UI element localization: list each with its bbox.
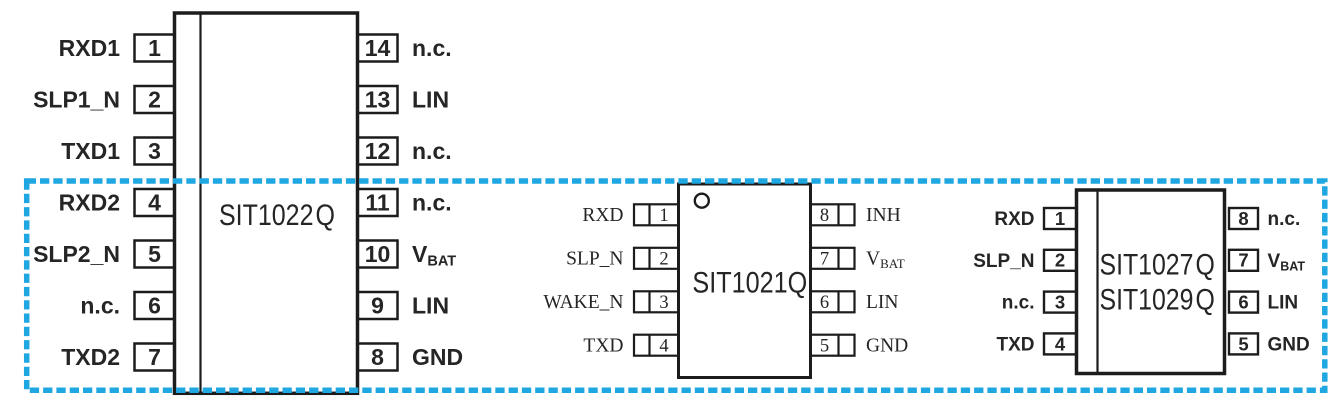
svg-text:4: 4	[659, 336, 668, 356]
svg-text:SLP2_N: SLP2_N	[33, 241, 120, 267]
svg-text:SIT1021Q: SIT1021Q	[692, 266, 807, 299]
svg-text:n.c.: n.c.	[1002, 293, 1035, 314]
svg-text:LIN: LIN	[1268, 293, 1299, 314]
svg-text:n.c.: n.c.	[412, 138, 452, 164]
svg-text:8: 8	[820, 206, 829, 226]
svg-text:8: 8	[1238, 208, 1248, 229]
svg-text:3: 3	[659, 293, 668, 313]
svg-text:TXD1: TXD1	[61, 138, 120, 164]
svg-text:RXD: RXD	[994, 209, 1034, 230]
svg-text:n.c.: n.c.	[412, 35, 452, 61]
svg-text:7: 7	[148, 344, 161, 370]
svg-text:6: 6	[148, 292, 161, 318]
svg-text:9: 9	[371, 292, 384, 318]
svg-text:SLP_N: SLP_N	[973, 251, 1034, 272]
svg-text:11: 11	[365, 189, 390, 215]
svg-text:8: 8	[371, 344, 384, 370]
svg-text:12: 12	[365, 138, 391, 164]
svg-text:GND: GND	[1268, 334, 1310, 355]
svg-text:n.c.: n.c.	[80, 292, 120, 318]
svg-text:4: 4	[148, 189, 161, 215]
svg-text:RXD: RXD	[582, 205, 623, 226]
svg-text:TXD2: TXD2	[61, 344, 120, 370]
svg-text:n.c.: n.c.	[1268, 209, 1301, 230]
svg-text:LIN: LIN	[866, 292, 899, 313]
svg-text:13: 13	[365, 86, 391, 112]
svg-text:n.c.: n.c.	[412, 189, 452, 215]
svg-text:GND: GND	[412, 344, 463, 370]
svg-text:RXD2: RXD2	[59, 189, 120, 215]
svg-text:7: 7	[1238, 250, 1248, 271]
svg-text:6: 6	[1238, 292, 1248, 313]
svg-text:2: 2	[659, 250, 668, 270]
svg-text:SIT1029 Q: SIT1029 Q	[1100, 283, 1215, 316]
svg-text:5: 5	[148, 241, 161, 267]
svg-text:1: 1	[659, 206, 668, 226]
svg-text:4: 4	[1055, 333, 1066, 354]
svg-text:2: 2	[148, 86, 161, 112]
svg-text:6: 6	[820, 293, 829, 313]
svg-text:2: 2	[1055, 250, 1065, 271]
svg-text:LIN: LIN	[412, 292, 449, 318]
svg-text:INH: INH	[866, 205, 901, 226]
svg-text:14: 14	[365, 35, 391, 61]
svg-text:3: 3	[1055, 292, 1065, 313]
svg-text:RXD1: RXD1	[59, 35, 121, 61]
svg-text:SIT1022 Q: SIT1022 Q	[219, 199, 335, 232]
svg-text:5: 5	[1238, 333, 1248, 354]
svg-text:3: 3	[148, 138, 161, 164]
svg-text:5: 5	[820, 336, 829, 356]
svg-text:SLP1_N: SLP1_N	[33, 86, 120, 112]
svg-text:WAKE_N: WAKE_N	[543, 292, 623, 313]
svg-text:1: 1	[148, 35, 161, 61]
svg-text:7: 7	[820, 250, 829, 270]
svg-text:1: 1	[1055, 208, 1065, 229]
svg-text:TXD: TXD	[997, 334, 1035, 355]
svg-text:GND: GND	[866, 336, 908, 357]
svg-text:TXD: TXD	[583, 336, 623, 357]
svg-text:SLP_N: SLP_N	[566, 249, 623, 270]
svg-text:SIT1027 Q: SIT1027 Q	[1100, 249, 1215, 282]
svg-text:LIN: LIN	[412, 86, 449, 112]
svg-text:10: 10	[365, 241, 391, 267]
